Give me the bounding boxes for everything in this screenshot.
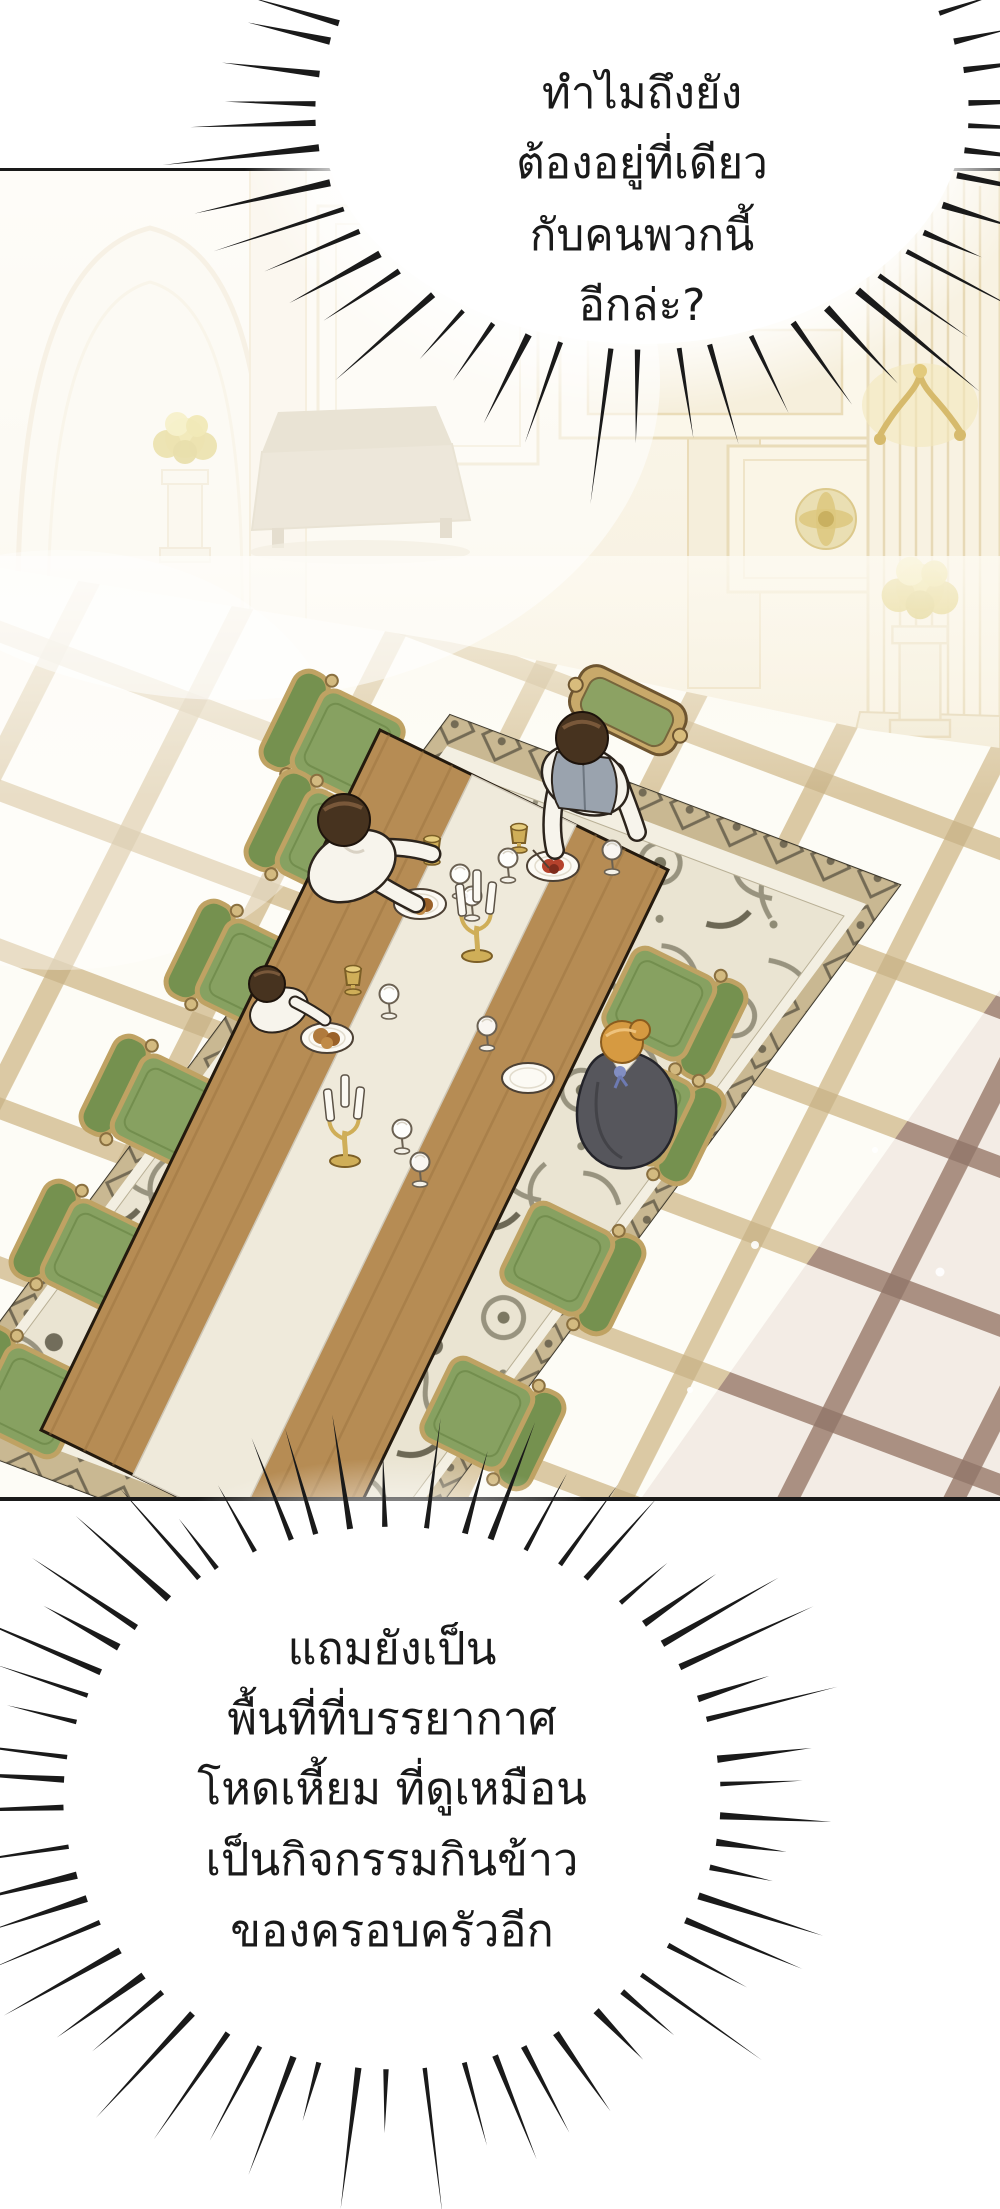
- bubble-line: อีกล่ะ?: [578, 280, 705, 331]
- bubble-line: พื้นที่ที่บรรยากาศ: [227, 1686, 557, 1745]
- gold-goblet: [511, 824, 527, 854]
- wine-glass: [603, 841, 622, 876]
- gold-goblet: [345, 966, 361, 996]
- bubble-line: ต้องอยู่ที่เดียว: [516, 132, 768, 190]
- webtoon-page: { "comic": { "type": "webtoon-panel", "b…: [0, 0, 1000, 2209]
- bubble-line: กับคนพวกนี้: [530, 203, 755, 261]
- wine-glass: [393, 1120, 412, 1155]
- wine-glass: [380, 985, 399, 1020]
- bubble-line: ของครอบครัวอีก: [230, 1904, 553, 1957]
- comic-artwork: ทำไมถึงยัง ต้องอยู่ที่เดียว กับคนพวกนี้ …: [0, 0, 1000, 2209]
- wine-glass: [499, 849, 518, 884]
- wine-glass: [478, 1017, 497, 1052]
- candle: [341, 1075, 349, 1107]
- bubble-line: เป็นกิจกรรมกินข้าว: [206, 1833, 579, 1886]
- wine-glass: [411, 1153, 430, 1188]
- plate: [502, 1063, 554, 1093]
- plate: [301, 1023, 353, 1053]
- comic-panel-stage: ทำไมถึงยัง ต้องอยู่ที่เดียว กับคนพวกนี้ …: [0, 0, 1000, 2209]
- bubble-line: แถมยังเป็น: [288, 1622, 497, 1675]
- gold-medallion: [796, 489, 856, 549]
- bubble-line: โหดเหี้ยม ที่ดูเหมือน: [197, 1756, 587, 1816]
- candle: [473, 870, 481, 902]
- bubble-line: ทำไมถึงยัง: [542, 68, 742, 119]
